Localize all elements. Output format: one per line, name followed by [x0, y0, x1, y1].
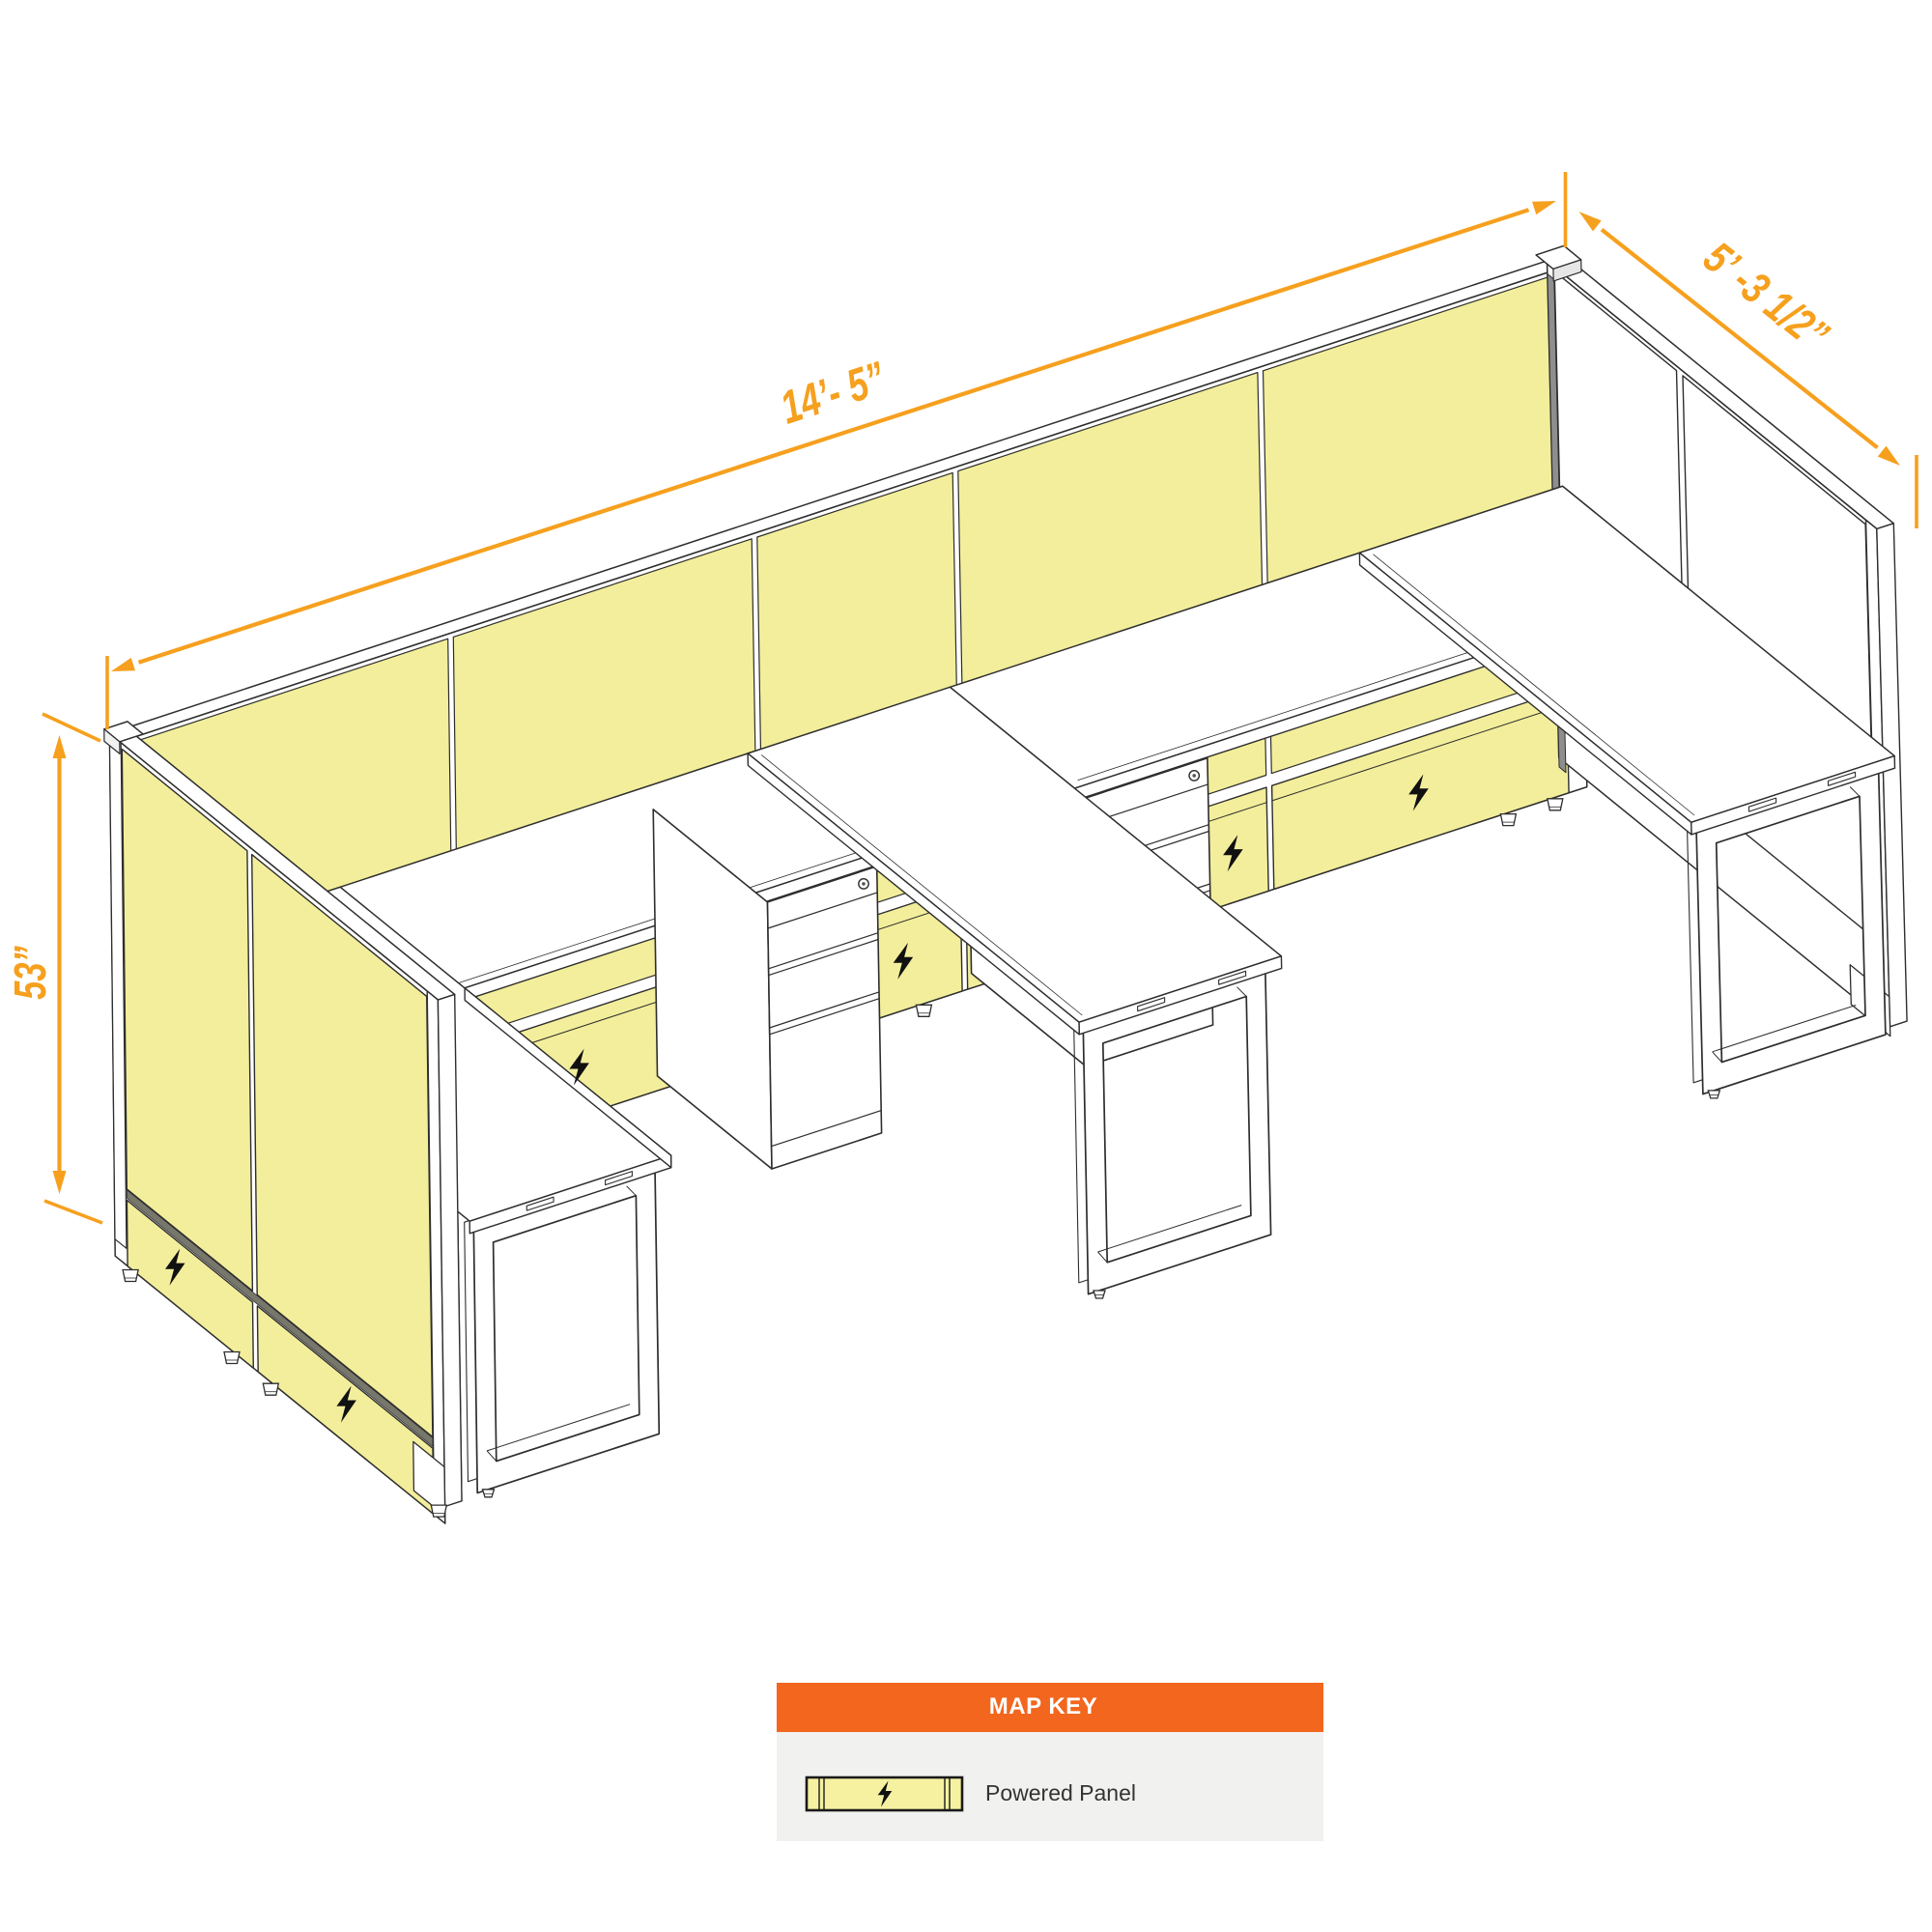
svg-text:53”: 53” [5, 946, 55, 1000]
svg-text:MAP KEY: MAP KEY [989, 1693, 1097, 1719]
svg-text:Powered Panel: Powered Panel [985, 1780, 1136, 1805]
